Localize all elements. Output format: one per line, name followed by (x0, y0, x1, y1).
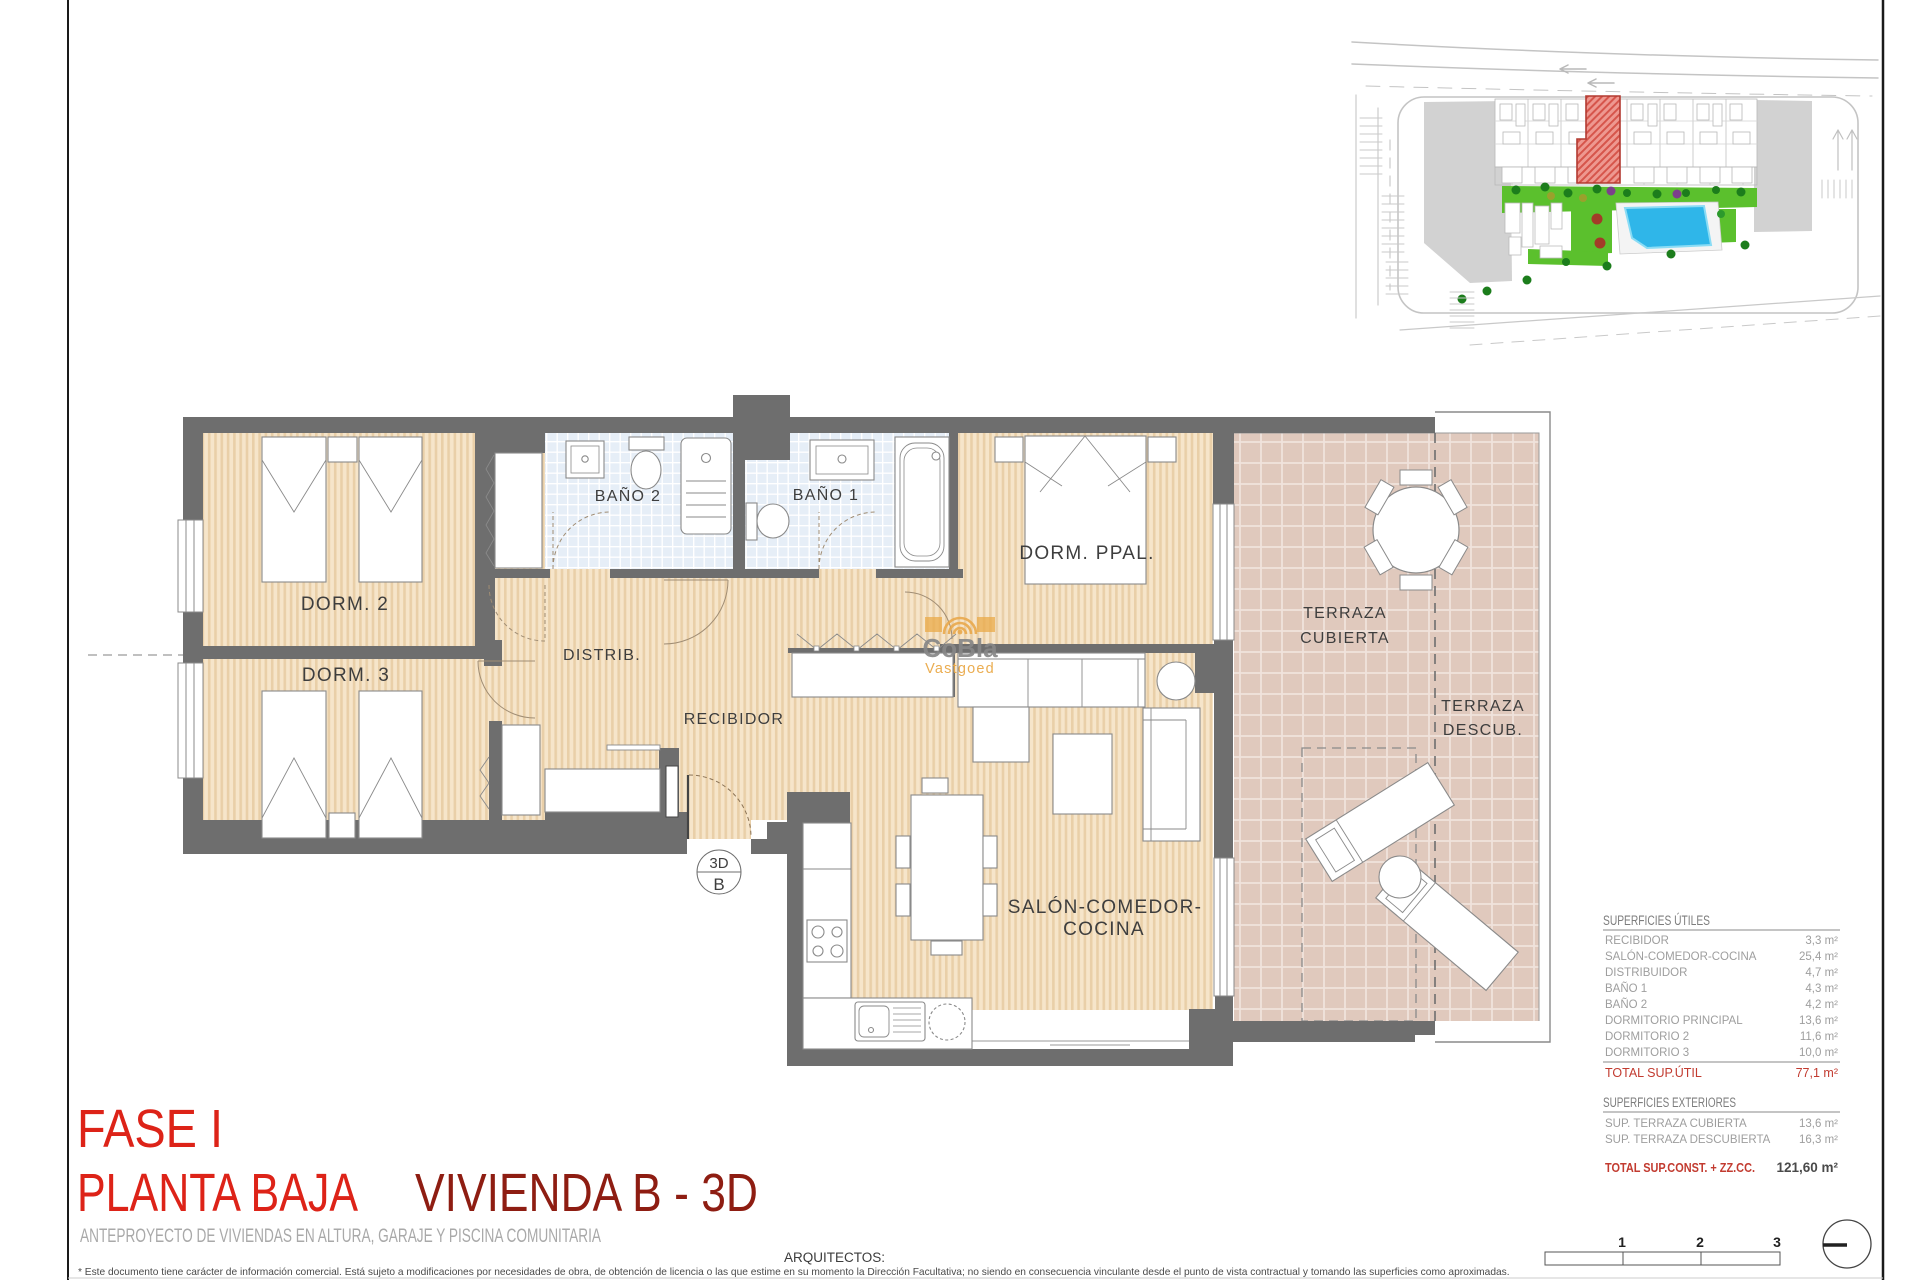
svg-text:BAÑO 1: BAÑO 1 (1605, 982, 1647, 995)
svg-text:* Este documento tiene carácte: * Este documento tiene carácter de infor… (78, 1267, 1510, 1278)
svg-text:4,7 m²: 4,7 m² (1805, 967, 1838, 979)
svg-text:3: 3 (1773, 1234, 1781, 1250)
svg-text:16,3 m²: 16,3 m² (1799, 1134, 1838, 1146)
svg-text:TERRAZA: TERRAZA (1441, 698, 1525, 715)
svg-text:RECIBIDOR: RECIBIDOR (684, 711, 785, 728)
svg-text:B: B (713, 875, 724, 894)
svg-text:TERRAZA: TERRAZA (1303, 605, 1387, 622)
svg-text:ANTEPROYECTO DE VIVIENDAS EN A: ANTEPROYECTO DE VIVIENDAS EN ALTURA, GAR… (80, 1225, 601, 1247)
svg-text:RECIBIDOR: RECIBIDOR (1605, 935, 1669, 947)
svg-text:3D: 3D (709, 855, 728, 872)
svg-text:DORMITORIO 2: DORMITORIO 2 (1605, 1031, 1689, 1043)
svg-text:DORMITORIO PRINCIPAL: DORMITORIO PRINCIPAL (1605, 1015, 1743, 1027)
svg-text:BAÑO 1: BAÑO 1 (793, 484, 860, 504)
svg-text:BAÑO 2: BAÑO 2 (1605, 998, 1647, 1011)
svg-text:SALÓN-COMEDOR-: SALÓN-COMEDOR- (1008, 896, 1203, 918)
svg-text:121,60 m²: 121,60 m² (1776, 1160, 1838, 1175)
svg-text:DORMITORIO 3: DORMITORIO 3 (1605, 1047, 1689, 1059)
svg-text:TOTAL SUP.ÚTIL: TOTAL SUP.ÚTIL (1605, 1065, 1702, 1080)
svg-text:CoBla: CoBla (922, 633, 998, 663)
svg-text:SUP. TERRAZA CUBIERTA: SUP. TERRAZA CUBIERTA (1605, 1118, 1747, 1130)
svg-text:77,1 m²: 77,1 m² (1796, 1066, 1838, 1080)
svg-text:DISTRIB.: DISTRIB. (563, 647, 641, 664)
svg-text:COCINA: COCINA (1063, 919, 1145, 940)
svg-text:SALÓN-COMEDOR-COCINA: SALÓN-COMEDOR-COCINA (1605, 950, 1757, 963)
svg-text:1: 1 (1618, 1234, 1626, 1250)
svg-text:10,0 m²: 10,0 m² (1799, 1047, 1838, 1059)
svg-text:DISTRIBUIDOR: DISTRIBUIDOR (1605, 967, 1687, 979)
svg-text:3,3 m²: 3,3 m² (1805, 935, 1838, 947)
svg-text:11,6 m²: 11,6 m² (1800, 1031, 1838, 1043)
svg-text:4,3 m²: 4,3 m² (1805, 983, 1838, 995)
svg-text:VIVIENDA B - 3D: VIVIENDA B - 3D (415, 1163, 758, 1223)
svg-text:SUP. TERRAZA DESCUBIERTA: SUP. TERRAZA DESCUBIERTA (1605, 1134, 1771, 1146)
svg-text:13,6 m²: 13,6 m² (1799, 1118, 1838, 1130)
svg-text:SUPERFICIES EXTERIORES: SUPERFICIES EXTERIORES (1603, 1095, 1736, 1110)
svg-text:FASE I: FASE I (77, 1099, 223, 1159)
svg-text:13,6 m²: 13,6 m² (1799, 1015, 1838, 1027)
svg-text:SUPERFICIES ÚTILES: SUPERFICIES ÚTILES (1603, 913, 1710, 928)
svg-text:DORM. PPAL.: DORM. PPAL. (1019, 543, 1154, 564)
svg-text:Vastgoed: Vastgoed (925, 661, 995, 677)
svg-text:CUBIERTA: CUBIERTA (1300, 630, 1390, 647)
svg-text:2: 2 (1696, 1234, 1704, 1250)
svg-text:DORM. 2: DORM. 2 (301, 594, 389, 615)
svg-text:PLANTA BAJA: PLANTA BAJA (77, 1163, 358, 1223)
svg-text:4,2 m²: 4,2 m² (1805, 999, 1838, 1011)
svg-text:BAÑO 2: BAÑO 2 (595, 485, 662, 505)
svg-text:DORM. 3: DORM. 3 (302, 665, 390, 686)
svg-text:25,4 m²: 25,4 m² (1799, 951, 1838, 963)
svg-text:DESCUB.: DESCUB. (1443, 722, 1523, 739)
svg-text:ARQUITECTOS:: ARQUITECTOS: (784, 1250, 885, 1265)
svg-text:TOTAL SUP.CONST. + ZZ.CC.: TOTAL SUP.CONST. + ZZ.CC. (1605, 1160, 1755, 1175)
